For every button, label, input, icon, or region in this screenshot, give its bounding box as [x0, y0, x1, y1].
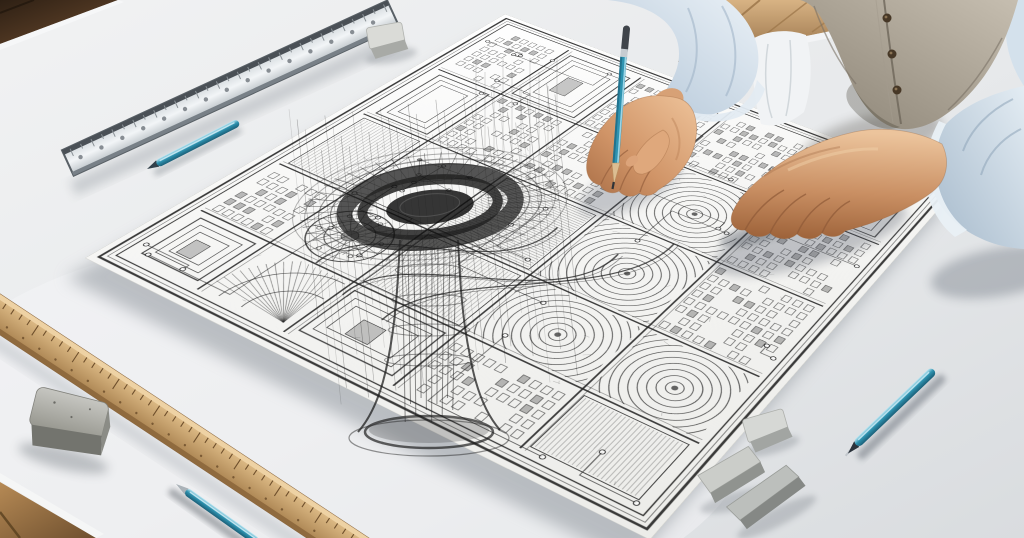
turbine-drawing [281, 58, 587, 456]
drafter [587, 0, 1024, 249]
pen-bottom-right [842, 365, 947, 467]
metal-ruler [57, 1, 407, 196]
scene: Photorealistic scene of a drafter at a w… [0, 0, 1024, 538]
left-hand [731, 129, 946, 238]
pencil-lead [613, 182, 614, 189]
eraser-top [360, 20, 418, 67]
pencil-eraser-cap [625, 29, 627, 50]
overlay-layer [0, 0, 1024, 538]
shirt [753, 31, 811, 125]
